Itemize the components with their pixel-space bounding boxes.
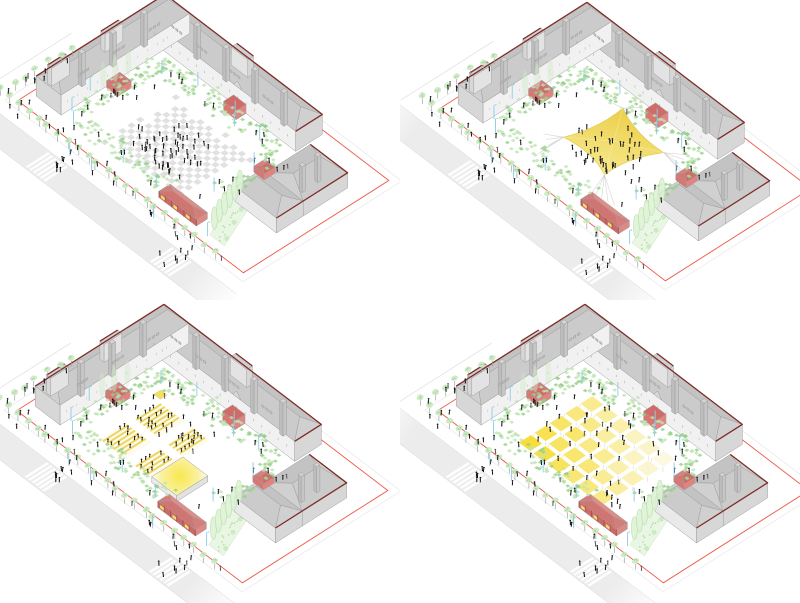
cypress-tree bbox=[237, 170, 243, 193]
cypress-tree bbox=[659, 178, 665, 201]
panel-event-canopy bbox=[400, 0, 800, 300]
stall-canopy bbox=[549, 415, 573, 432]
stall-canopy bbox=[623, 428, 647, 445]
scenario-grid bbox=[0, 0, 800, 603]
axonometric-plaza-everyday bbox=[0, 0, 400, 300]
cypress-tree bbox=[657, 480, 663, 503]
panel-market-grid bbox=[400, 300, 800, 603]
panel-open-air-stage bbox=[0, 300, 400, 603]
axonometric-market-grid bbox=[400, 300, 800, 603]
stall-canopy bbox=[592, 448, 616, 465]
stall-canopy bbox=[651, 450, 675, 467]
cypress-tree bbox=[236, 480, 242, 503]
axonometric-open-air-stage bbox=[0, 300, 400, 603]
axonometric-event-canopy bbox=[400, 0, 800, 300]
panel-plaza-everyday bbox=[0, 0, 400, 300]
